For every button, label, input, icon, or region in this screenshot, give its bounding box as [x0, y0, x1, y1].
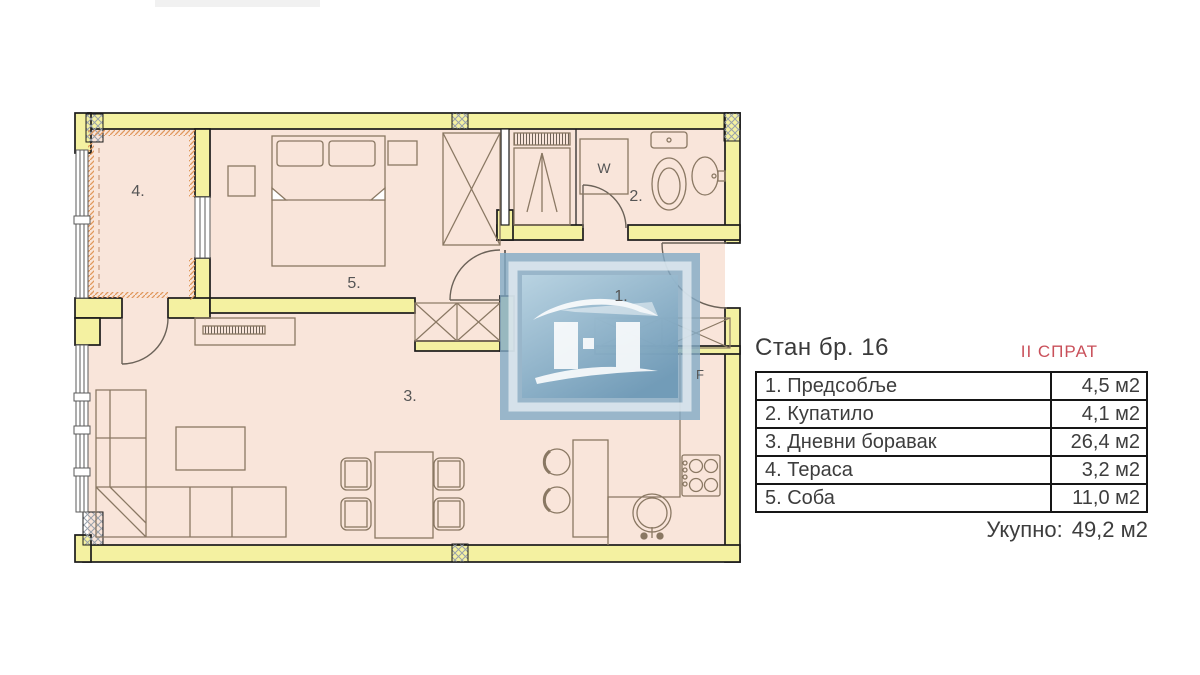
wall-bedroom-bottom	[210, 298, 415, 313]
room-label-terrace: 4.	[131, 183, 144, 200]
hatch-top-right	[724, 113, 740, 141]
wall-left-middle	[75, 298, 122, 318]
room-area: 4,5 м2	[1050, 373, 1146, 399]
hatch-top-middle	[452, 113, 468, 129]
room-area: 4,1 м2	[1050, 401, 1146, 427]
room-name: 3. Дневни боравак	[757, 431, 1050, 454]
wall-bottom	[83, 545, 740, 562]
hatch-top-left	[86, 114, 103, 142]
wall-closet-strip	[415, 341, 513, 351]
room-area: 26,4 м2	[1050, 429, 1146, 455]
label-washing-machine: W	[597, 160, 611, 176]
window-mullion	[74, 468, 90, 476]
window-terrace-bedroom	[195, 197, 210, 258]
builder-logo-watermark	[500, 253, 700, 420]
table-row: 5. Соба 11,0 м2	[757, 485, 1146, 511]
window-mullion	[74, 216, 90, 224]
wall-terrace-right-lower	[195, 258, 210, 300]
hatch-bottom-middle	[452, 544, 468, 562]
room-label-bedroom: 5.	[347, 275, 360, 292]
table-row: 1. Предсобље 4,5 м2	[757, 373, 1146, 401]
wall-top	[88, 113, 740, 129]
window-mullion	[74, 426, 90, 434]
room-name: 5. Соба	[757, 487, 1050, 510]
wall-left-middle2	[75, 318, 100, 345]
hatch-bottom-left	[83, 512, 103, 545]
panel-header: Стан бр. 16 II СПРАТ	[755, 334, 1148, 362]
room-name: 1. Предсобље	[757, 375, 1050, 398]
wall-bedroom-shower	[501, 129, 509, 225]
room-name: 4. Тераса	[757, 459, 1050, 482]
room-name: 2. Купатило	[757, 403, 1050, 426]
room-label-bathroom: 2.	[629, 188, 642, 205]
wall-terrace-right-upper	[195, 129, 210, 197]
wall-terrace-bottom-corner	[168, 298, 210, 318]
total-value: 49,2 м2	[1072, 517, 1148, 543]
area-info-panel: Стан бр. 16 II СПРАТ 1. Предсобље 4,5 м2…	[755, 334, 1148, 543]
table-row: 2. Купатило 4,1 м2	[757, 401, 1146, 429]
total-label: Укупно:	[986, 517, 1062, 543]
wall-bath-hall-right	[628, 225, 740, 240]
room-area: 11,0 м2	[1050, 485, 1146, 511]
total-line: Укупно: 49,2 м2	[755, 517, 1148, 543]
label-fridge: F	[696, 367, 704, 382]
room-label-living: 3.	[403, 388, 416, 405]
table-row: 3. Дневни боравак 26,4 м2	[757, 429, 1146, 457]
room-area: 3,2 м2	[1050, 457, 1146, 483]
apartment-title: Стан бр. 16	[755, 334, 889, 362]
table-row: 4. Тераса 3,2 м2	[757, 457, 1146, 485]
towel-rail	[514, 133, 570, 145]
floor-badge: II СПРАТ	[1021, 342, 1098, 362]
area-table: 1. Предсобље 4,5 м2 2. Купатило 4,1 м2 3…	[755, 371, 1148, 513]
window-mullion	[74, 393, 90, 401]
room-label-hall: 1.	[614, 288, 627, 305]
